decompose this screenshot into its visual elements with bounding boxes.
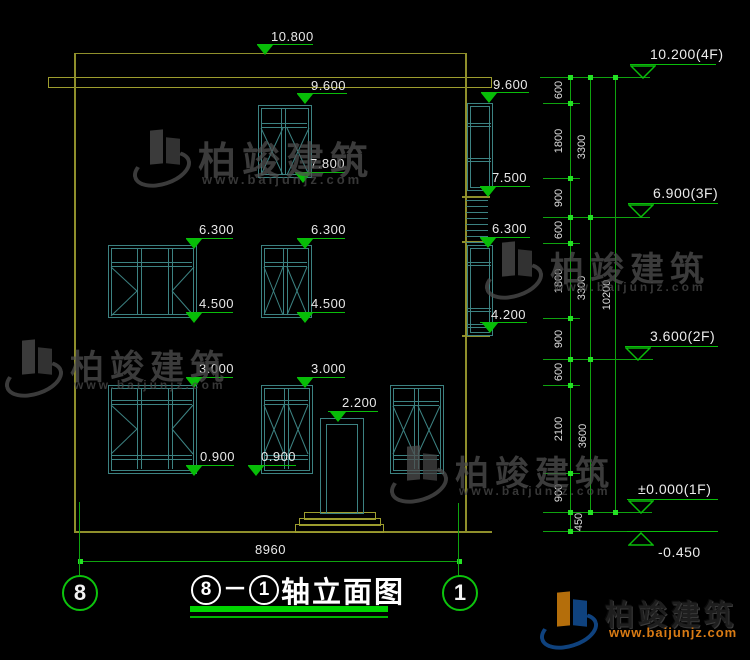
transom [467, 123, 491, 124]
dim-segment-text: 2100 [553, 417, 565, 441]
brand-logo-color [543, 588, 601, 648]
elevation-marker-triangle [297, 239, 313, 249]
transom [467, 308, 491, 309]
transom [111, 400, 192, 401]
dim-text-8960: 8960 [255, 543, 286, 557]
extension-line-axis1 [458, 503, 459, 576]
dim-tick [568, 357, 573, 362]
logo-swoosh-icon [535, 606, 603, 657]
elevation-marker-triangle [257, 45, 273, 55]
transom [111, 459, 192, 460]
floor-marker-triangle [628, 532, 654, 551]
title-text: 轴立面图 [281, 569, 405, 611]
transom [111, 266, 192, 267]
elevation-drawing-canvas: 10.8009.6007.8009.6007.5006.3004.2006.30… [0, 0, 750, 660]
window-top-transom [261, 123, 307, 124]
transom [467, 158, 491, 159]
elevation-marker-label: 0.900 [200, 450, 235, 464]
floor-marker-triangle [630, 65, 656, 84]
watermark-url-text: www.baijunjz.com [74, 378, 226, 392]
stair-rung-line [466, 218, 488, 219]
dim-extension-line [543, 178, 580, 179]
stair-rung-line [466, 206, 488, 207]
entry-step-3 [295, 524, 384, 533]
elevation-marker-triangle [186, 466, 202, 476]
dim-tick [568, 383, 573, 388]
dim-line-8960 [80, 561, 459, 562]
elevation-marker-triangle [297, 94, 313, 104]
extension-line-axis8 [79, 502, 80, 575]
dim-segment-text: 3300 [576, 135, 588, 159]
elevation-marker-triangle [481, 93, 497, 103]
dim-extension-line [543, 385, 580, 386]
elevation-marker-triangle [482, 323, 498, 333]
logo-swoosh-icon [128, 144, 196, 195]
dim-segment-text: 600 [553, 221, 565, 239]
logo-swoosh-icon [0, 354, 68, 405]
elevation-marker-label: 9.600 [311, 79, 346, 93]
dim-tick [568, 176, 573, 181]
elevation-marker-label: 2.200 [342, 396, 377, 410]
stair-rung-line [466, 200, 488, 201]
brand-logo-watermark [488, 238, 546, 298]
floor-marker-label: 3.600(2F) [650, 329, 715, 344]
dim-tick [613, 75, 618, 80]
elevation-marker-label: 7.500 [492, 171, 527, 185]
elevation-marker-label: 6.300 [492, 222, 527, 236]
elevation-marker-triangle [480, 187, 496, 197]
transom [467, 311, 491, 312]
dim-tick [568, 75, 573, 80]
title-underline-thin [190, 616, 388, 618]
elevation-marker-label: 4.500 [311, 297, 346, 311]
elevation-marker-label: 6.300 [311, 223, 346, 237]
dim-chain-line [615, 77, 616, 513]
axis-bubble-1-label: 1 [454, 580, 466, 605]
mullion [168, 248, 169, 315]
watermark-url-text: www.baijunjz.com [554, 280, 706, 294]
transom [111, 455, 192, 456]
mullion [283, 248, 284, 315]
dim-tick [568, 101, 573, 106]
wall-left [74, 53, 76, 532]
title-dash: － [223, 577, 247, 603]
brand-logo-watermark [393, 442, 451, 502]
dim-tick [568, 316, 573, 321]
title-axis-end-circle: 1 [249, 575, 279, 605]
dim-tick [588, 75, 593, 80]
stair-rung-line [466, 224, 488, 225]
brand-logo-watermark [8, 336, 66, 396]
dim-extension-line [543, 318, 580, 319]
floor-marker-label: -0.450 [658, 545, 701, 560]
elevation-marker-triangle [248, 466, 264, 476]
mullion [137, 248, 138, 315]
elevation-marker-triangle [297, 378, 313, 388]
transom [264, 404, 308, 405]
mullion [287, 248, 288, 315]
floor-marker-label: 10.200(4F) [650, 47, 723, 62]
elevation-marker-label: 4.500 [199, 297, 234, 311]
elevation-marker-triangle [297, 313, 313, 323]
floor-marker-triangle [628, 204, 654, 223]
dim-segment-text: 900 [553, 189, 565, 207]
elevation-marker-label: 9.600 [493, 78, 528, 92]
floor-marker-triangle [625, 347, 651, 366]
eave-slab [48, 77, 492, 88]
stair-rung-line [466, 230, 488, 231]
dim-segment-text: 600 [553, 81, 565, 99]
title-underline-thick [190, 606, 388, 612]
mullion [141, 248, 142, 315]
transom [264, 262, 307, 263]
dim-tick [588, 357, 593, 362]
transom [111, 404, 192, 405]
watermark-url-text: www.baijunjz.com [609, 625, 737, 640]
elevation-marker-triangle [330, 412, 346, 422]
dim-segment-text: 3600 [577, 424, 589, 448]
elevation-marker-label: 3.000 [311, 362, 346, 376]
floor-marker-label: ±0.000(1F) [638, 482, 711, 497]
axis-bubble-8-label: 8 [74, 580, 86, 605]
elevation-marker-label: 10.800 [271, 30, 314, 44]
elevation-marker-triangle [186, 313, 202, 323]
window-top-transom [261, 127, 307, 128]
title-axis-start-circle: 8 [191, 575, 221, 605]
transom [467, 161, 491, 162]
ground-line [74, 531, 492, 533]
dim-segment-text: 600 [553, 363, 565, 381]
window-stair-upper-inner [470, 106, 490, 188]
mullion [172, 248, 173, 315]
stair-rung-line [466, 212, 488, 213]
floor-marker-triangle [628, 500, 654, 519]
axis-bubble-1: 1 [442, 575, 478, 611]
drawing-title: 8 － 1 轴立面图 [191, 569, 405, 611]
logo-swoosh-icon [385, 460, 453, 511]
door-inner-frame [326, 424, 358, 514]
elevation-marker-label: 6.300 [199, 223, 234, 237]
transom [393, 401, 439, 402]
transom [264, 266, 307, 267]
watermark-url-text: www.baijunjz.com [202, 172, 362, 187]
window-2f-left-inner [111, 248, 194, 315]
floor-marker-label: 6.900(3F) [653, 186, 718, 201]
dim-segment-text: 450 [573, 513, 585, 531]
dim-tick [588, 215, 593, 220]
dim-segment-text: 900 [553, 330, 565, 348]
elevation-marker-triangle [186, 239, 202, 249]
dim-tick [588, 510, 593, 515]
axis-bubble-8: 8 [62, 575, 98, 611]
elevation-marker-label: 0.900 [261, 450, 296, 464]
brand-logo-watermark [136, 126, 194, 186]
elevation-marker-label: 4.200 [491, 308, 526, 322]
transom [467, 126, 491, 127]
dim-segment-text: 1800 [553, 129, 565, 153]
dim-extension-line [543, 103, 580, 104]
transom [393, 405, 439, 406]
transom [111, 262, 192, 263]
dim-tick [613, 510, 618, 515]
watermark-url-text: www.baijunjz.com [459, 484, 611, 498]
dim-tick [568, 215, 573, 220]
transom [264, 400, 308, 401]
